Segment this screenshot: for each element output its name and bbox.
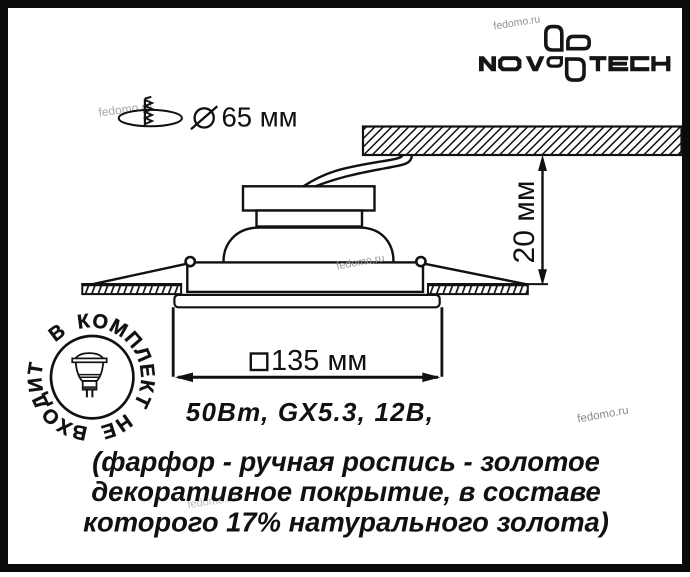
svg-text:135 мм: 135 мм <box>271 345 367 377</box>
svg-text:65 мм: 65 мм <box>222 101 298 132</box>
svg-text:декоративное покрытие, в соста: декоративное покрытие, в составе <box>91 476 601 507</box>
svg-text:(фарфор - ручная роспись - зол: (фарфор - ручная роспись - золотое <box>92 446 600 477</box>
svg-text:50Вт, GX5.3, 12В,: 50Вт, GX5.3, 12В, <box>186 397 434 427</box>
svg-text:20 мм: 20 мм <box>508 181 541 264</box>
svg-text:которого 17% натурального золо: которого 17% натурального золота) <box>83 507 609 538</box>
